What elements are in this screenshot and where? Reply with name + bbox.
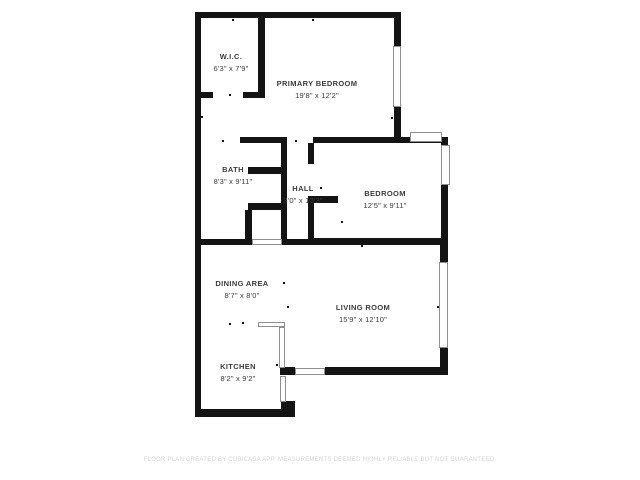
wall-segment (280, 367, 295, 375)
door-tick (295, 140, 297, 142)
room-dims: 8'2" x 9'2" (220, 374, 256, 383)
wall-segment (195, 12, 401, 18)
room-label-bedroom: BEDROOM 12'5" x 9'11" (363, 189, 406, 210)
door-tick (222, 140, 224, 142)
room-label-living-room: LIVING ROOM 15'9" x 12'10" (336, 303, 390, 324)
window-segment (252, 239, 282, 245)
door-tick (201, 116, 203, 118)
door-tick (341, 221, 343, 223)
wall-segment (325, 367, 448, 375)
room-name: PRIMARY BEDROOM (277, 79, 358, 88)
room-name: BEDROOM (363, 189, 406, 198)
wall-segment (313, 238, 448, 245)
wall-segment (394, 12, 401, 46)
wall-segment (195, 239, 252, 245)
room-dims: 8'7" x 8'0" (215, 291, 268, 300)
floor-plan-image: W.I.C. 6'3" x 7'9" PRIMARY BEDROOM 19'8"… (0, 0, 640, 480)
door-tick (287, 306, 289, 308)
room-dims: 12'5" x 9'11" (363, 201, 406, 210)
room-label-primary-bedroom: PRIMARY BEDROOM 19'8" x 12'2" (277, 79, 358, 100)
door-tick (361, 245, 363, 247)
window-segment (410, 132, 442, 142)
footer-disclaimer: FLOOR PLAN CREATED BY CUBICASA APP. MEAS… (0, 457, 640, 463)
room-name: KITCHEN (220, 362, 256, 371)
wall-segment (243, 92, 265, 98)
wall-segment (195, 12, 201, 417)
room-label-wic: W.I.C. 6'3" x 7'9" (214, 52, 249, 73)
door-tick (391, 117, 393, 119)
room-label-dining-area: DINING AREA 8'7" x 8'0" (215, 279, 268, 300)
wall-segment (258, 12, 265, 98)
room-name: LIVING ROOM (336, 303, 390, 312)
window-segment (441, 145, 450, 185)
window-segment (280, 376, 286, 402)
door-tick (283, 282, 285, 284)
door-tick (229, 323, 231, 325)
door-tick (232, 19, 234, 21)
wall-segment (248, 167, 287, 174)
door-tick (437, 306, 439, 308)
plan-layer (0, 0, 640, 480)
room-dims: 6'3" x 7'9" (214, 64, 249, 73)
wall-segment (195, 92, 213, 98)
room-name: BATH (214, 165, 253, 174)
wall-segment (282, 239, 313, 245)
wall-segment (440, 238, 448, 264)
door-tick (229, 94, 231, 96)
wall-segment (195, 409, 295, 417)
room-name: HALL (283, 184, 322, 193)
door-tick (242, 322, 244, 324)
window-segment (393, 46, 401, 107)
wall-segment (308, 143, 314, 164)
wall-segment (240, 137, 287, 143)
room-label-kitchen: KITCHEN 8'2" x 9'2" (220, 362, 256, 383)
room-label-hall: HALL 3'0" x 10'3" (283, 184, 322, 205)
room-label-bath: BATH 8'3" x 9'11" (214, 165, 253, 186)
door-tick (312, 19, 314, 21)
door-tick (276, 364, 278, 366)
room-dims: 19'8" x 12'2" (277, 91, 358, 100)
room-dims: 8'3" x 9'11" (214, 177, 253, 186)
room-name: DINING AREA (215, 279, 268, 288)
room-dims: 15'9" x 12'10" (336, 315, 390, 324)
window-segment (295, 368, 325, 375)
window-segment (279, 327, 285, 368)
window-segment (439, 262, 448, 348)
wall-segment (248, 203, 287, 210)
wall-segment (281, 210, 287, 239)
wall-segment (281, 401, 295, 417)
room-dims: 3'0" x 10'3" (283, 196, 322, 205)
room-name: W.I.C. (214, 52, 249, 61)
